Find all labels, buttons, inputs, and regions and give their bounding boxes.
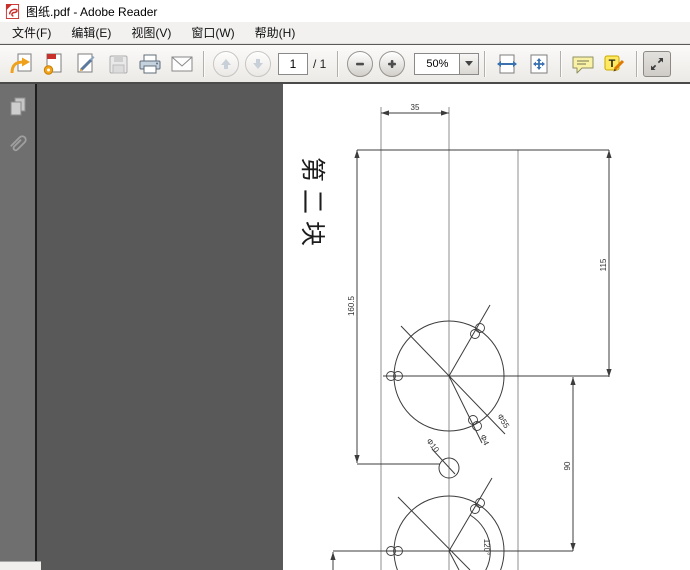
open-button[interactable] (6, 49, 38, 79)
adobe-reader-window: 图纸.pdf - Adobe Reader 文件(F) 编辑(E) 视图(V) … (0, 0, 690, 570)
menu-window[interactable]: 窗口(W) (181, 21, 244, 44)
toolbar-separator (560, 51, 562, 77)
create-pdf-icon (41, 52, 67, 76)
comment-icon (570, 52, 596, 76)
dim-160-label: 160.5 (347, 295, 356, 316)
paperclip-icon (6, 131, 30, 157)
fit-page-icon (527, 52, 551, 76)
print-icon (137, 52, 163, 76)
titlebar: 图纸.pdf - Adobe Reader (0, 0, 690, 22)
page-thumbnails-button[interactable] (4, 93, 32, 121)
zoom-out-button[interactable] (344, 49, 376, 79)
page-thumbnails-icon (7, 95, 29, 119)
toolbar-separator (337, 51, 339, 77)
page-total-label: / 1 (313, 57, 326, 71)
technical-drawing: 35 160.5 115 90 Φ55 Φ4 Φ10 120° (283, 84, 690, 570)
menu-help[interactable]: 帮助(H) (245, 21, 306, 44)
fit-page-button[interactable] (523, 49, 555, 79)
dim-90-label: 90 (563, 461, 572, 470)
toolbar-separator (484, 51, 486, 77)
document-pane: 第二块 (0, 84, 690, 570)
menu-edit[interactable]: 编辑(E) (61, 21, 121, 44)
menu-file[interactable]: 文件(F) (2, 21, 61, 44)
menubar: 文件(F) 编辑(E) 视图(V) 窗口(W) 帮助(H) (0, 22, 690, 44)
zoom-level-combo (414, 53, 479, 75)
sign-icon (74, 52, 98, 76)
dim-35-label: 35 (411, 103, 420, 112)
outline-and-dimension-lines (333, 113, 609, 570)
next-page-icon (245, 51, 271, 77)
slot-holes (387, 324, 485, 556)
hole-dia-label: Φ4 (478, 433, 491, 447)
save-icon (106, 52, 130, 76)
bolt-circle-dia-label: Φ55 (495, 412, 511, 430)
comment-button[interactable] (567, 49, 599, 79)
zoom-in-button[interactable] (376, 49, 408, 79)
highlight-icon: T (602, 52, 628, 76)
zoom-level-input[interactable] (414, 53, 460, 75)
zoom-in-icon (379, 51, 405, 77)
window-title: 图纸.pdf - Adobe Reader (26, 3, 157, 20)
fullscreen-icon (648, 55, 666, 73)
menu-view[interactable]: 视图(V) (121, 21, 181, 44)
angle-label: 120° (482, 539, 491, 556)
page-number-input[interactable] (278, 53, 308, 75)
chevron-down-icon (465, 61, 473, 66)
scrollbar-corner (0, 561, 41, 570)
open-icon (9, 52, 35, 76)
attachments-button[interactable] (4, 130, 32, 158)
toolbar: / 1 (0, 45, 690, 84)
pdf-page: 第二块 (283, 84, 690, 570)
center-hole-dia-label: Φ10 (424, 437, 441, 455)
toolbar-separator (203, 51, 205, 77)
fit-width-icon (495, 52, 519, 76)
next-page-button[interactable] (242, 49, 274, 79)
pdf-file-icon (5, 4, 20, 19)
previous-page-button[interactable] (210, 49, 242, 79)
fill-sign-button[interactable] (70, 49, 102, 79)
fullscreen-button[interactable] (643, 51, 671, 77)
navigation-sidebar (0, 84, 37, 570)
create-pdf-button[interactable] (38, 49, 70, 79)
save-button[interactable] (102, 49, 134, 79)
print-button[interactable] (134, 49, 166, 79)
email-icon (169, 52, 195, 76)
zoom-dropdown-button[interactable] (460, 53, 479, 75)
zoom-out-icon (347, 51, 373, 77)
highlight-text-button[interactable]: T (599, 49, 631, 79)
email-button[interactable] (166, 49, 198, 79)
fit-width-button[interactable] (491, 49, 523, 79)
toolbar-separator (636, 51, 638, 77)
dim-115-label: 115 (599, 258, 608, 271)
previous-page-icon (213, 51, 239, 77)
